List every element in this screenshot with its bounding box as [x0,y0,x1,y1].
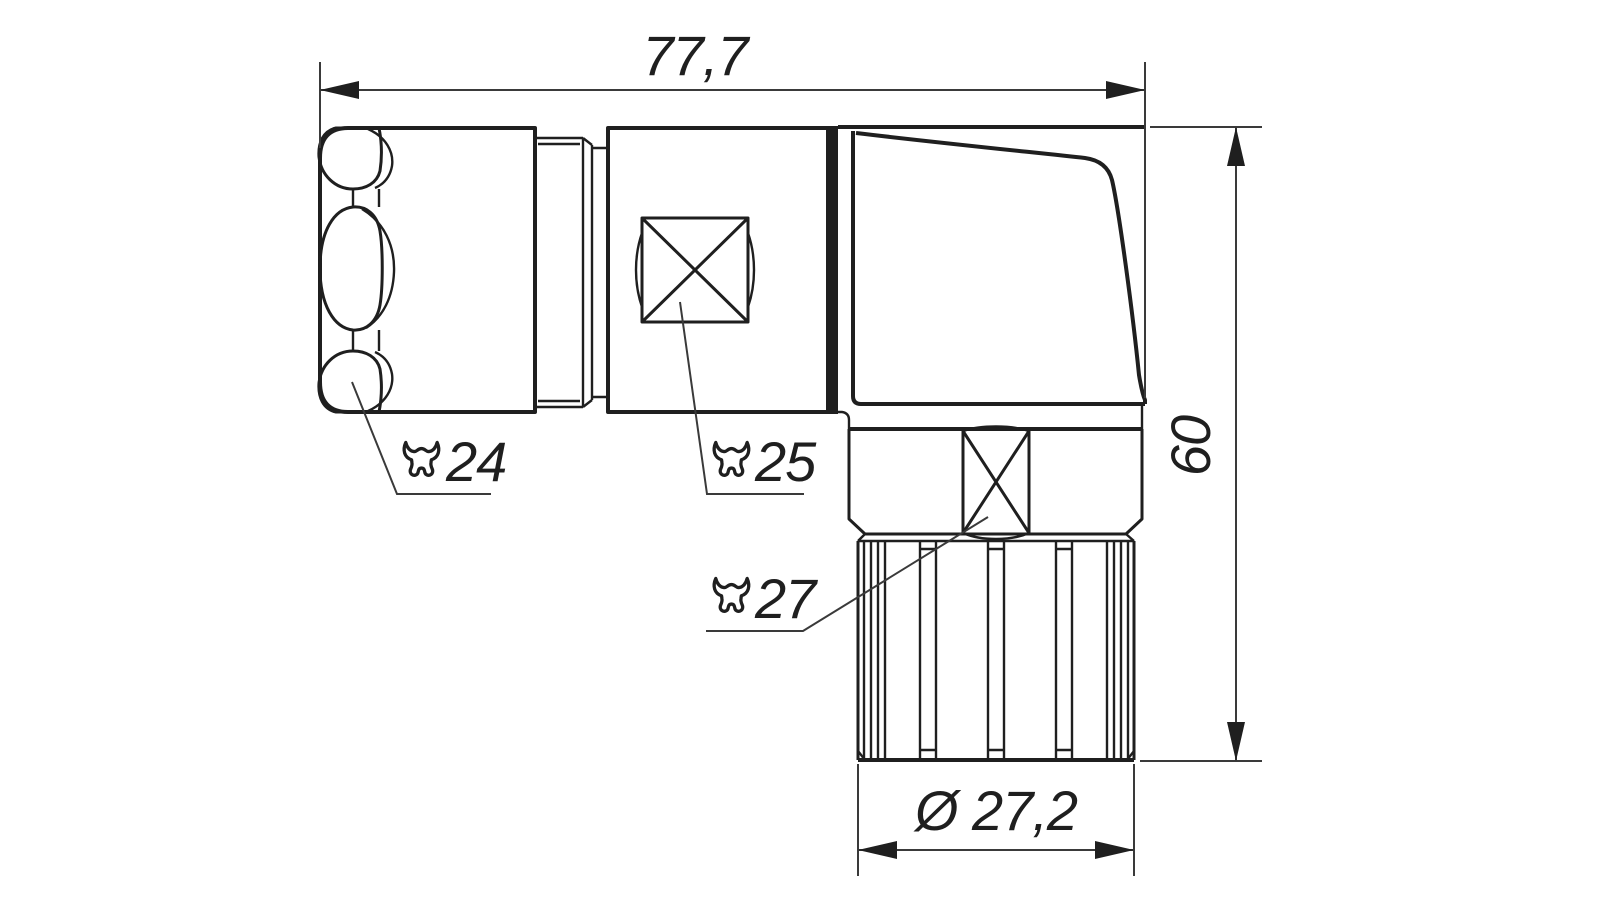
wrench-icon [404,442,439,475]
gland-neck [535,138,608,407]
gland-cap-outline [320,128,535,412]
coupling-nut [848,427,1143,540]
sleeve-groove-chamfers [858,549,1134,760]
flats-cross [963,431,1029,533]
neck-lines [535,138,608,407]
extension-lines [320,62,1145,398]
flats-cross [642,218,748,322]
callout-wrench-25: 25 [680,302,817,494]
callout-24-label: 24 [445,430,506,493]
housing-left-bottom-edge [853,131,1145,404]
wrench-icon [714,578,749,611]
sleeve-ribs [864,541,1128,760]
callout-wrench-24: 24 [352,382,506,494]
arrowhead-left [320,81,359,99]
spanner-flats-marker-25 [636,218,754,322]
cable-gland-cap [319,128,535,412]
dimension-height-value: 60 [1159,415,1222,476]
arrowhead-right [1106,81,1145,99]
wrench-icon [714,442,749,475]
arrowhead-bottom [1227,722,1245,761]
arrowhead-top [1227,127,1245,166]
housing-slant-right-edge [856,133,1145,404]
spanner-flats-marker-27 [963,427,1029,540]
connector-dimensional-drawing: 77,7 60 Ø 27,2 24 25 [0,0,1600,900]
dimension-length-value: 77,7 [643,24,751,87]
angled-housing [838,127,1145,429]
dimension-diameter-value: Ø 27,2 [913,779,1078,842]
arrowhead-left [858,841,897,859]
arrowhead-right [1095,841,1134,859]
sleeve-side-edges [858,541,1134,760]
connector-body [319,126,1145,760]
cable-sleeve [858,534,1134,760]
dimension-sleeve-diameter: Ø 27,2 [858,764,1134,876]
mating-face-bar [826,126,838,414]
callout-25-label: 25 [754,430,817,493]
center-body [608,126,838,414]
gland-lobe-middle [320,207,382,330]
dimension-overall-length: 77,7 [320,24,1145,398]
dimension-overall-height: 60 [1140,127,1262,761]
technical-drawing-canvas: 77,7 60 Ø 27,2 24 25 [0,0,1600,900]
housing-foot-step [838,412,849,429]
callout-27-label: 27 [754,567,818,630]
